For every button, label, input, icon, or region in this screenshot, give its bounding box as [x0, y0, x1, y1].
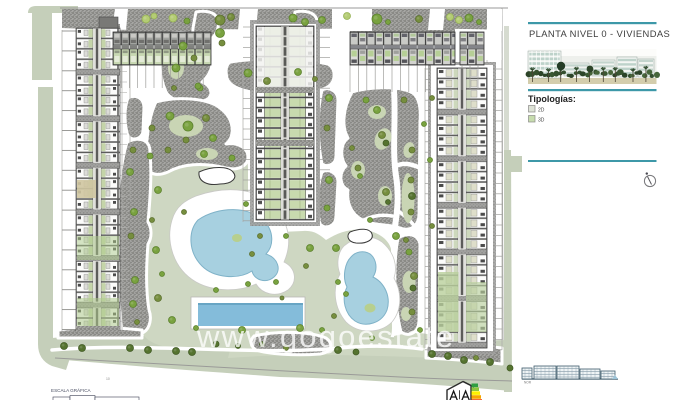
svg-text:ESCALA GRÁFICA: ESCALA GRÁFICA — [51, 387, 92, 393]
svg-text:Tipologías:: Tipologías: — [528, 94, 576, 104]
svg-text:PLANTA NIVEL 0 - VIVIENDAS: PLANTA NIVEL 0 - VIVIENDAS — [529, 28, 670, 39]
svg-text:2D: 2D — [538, 108, 545, 114]
svg-text:10: 10 — [106, 377, 110, 381]
svg-text:3D: 3D — [538, 118, 545, 124]
svg-text:NOR: NOR — [524, 381, 532, 385]
svg-text:www.gogoestate: www.gogoestate — [196, 319, 455, 354]
